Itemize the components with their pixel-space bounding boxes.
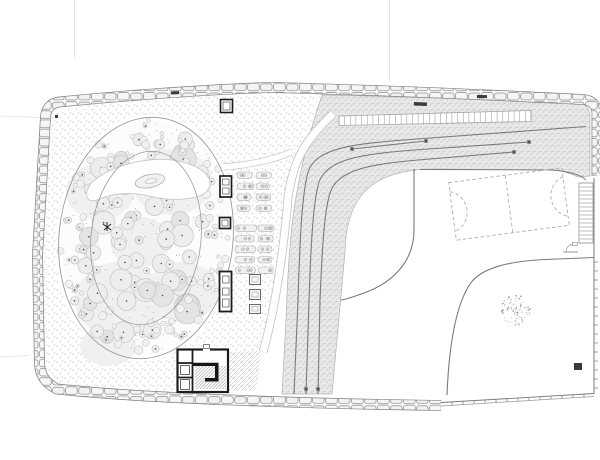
kiosk-4 xyxy=(220,272,232,312)
stair-hatch xyxy=(195,366,226,389)
entry-step xyxy=(204,345,210,349)
fence-ticks xyxy=(452,262,598,405)
fence-boundary xyxy=(441,178,598,406)
stair-ramp-right xyxy=(579,183,593,243)
kiosk-1 xyxy=(221,100,233,113)
sports-court xyxy=(449,168,570,240)
building-apron xyxy=(228,350,262,391)
kiosk-3 xyxy=(220,218,231,229)
service-boxes xyxy=(250,275,261,314)
site-plan xyxy=(0,0,600,460)
road-band xyxy=(282,95,590,394)
playground-paths xyxy=(341,169,594,395)
lone-tree xyxy=(501,295,531,325)
site-plan-canvas xyxy=(0,0,600,460)
building-footprint xyxy=(178,345,263,393)
gate-symbol xyxy=(563,243,578,253)
